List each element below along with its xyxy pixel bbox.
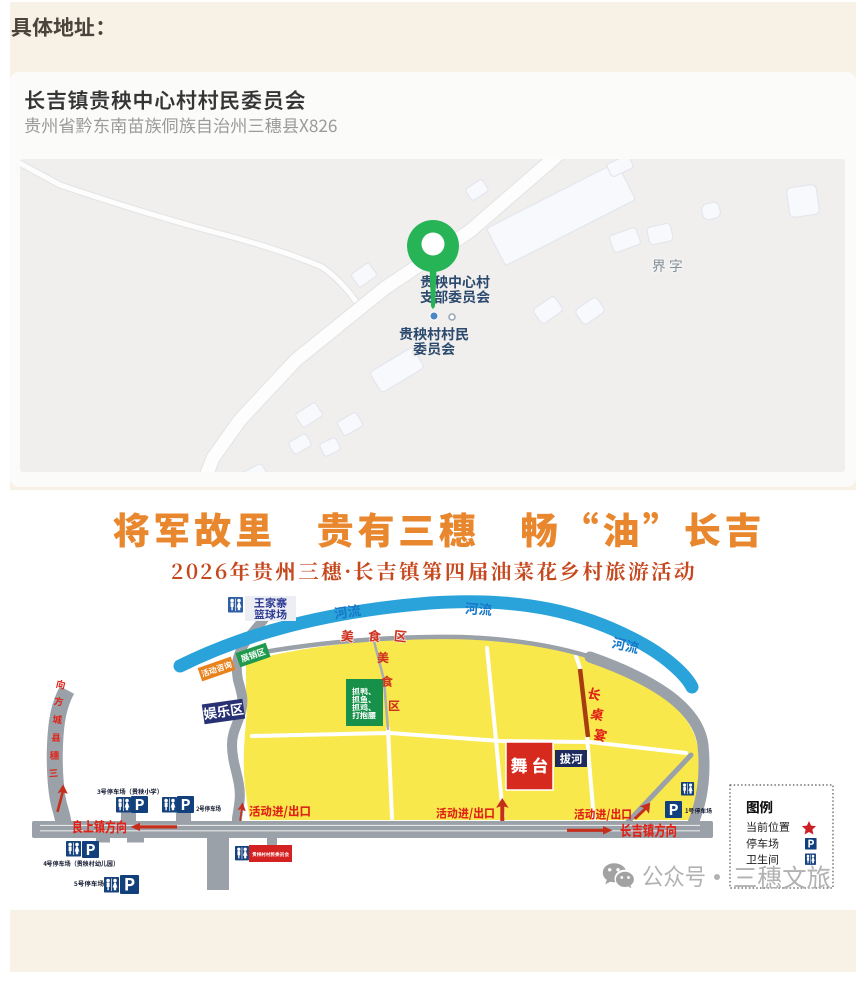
svg-text:食: 食 — [367, 625, 382, 645]
svg-text:1号停车场: 1号停车场 — [685, 806, 713, 815]
svg-text:停车场: 停车场 — [746, 836, 779, 852]
svg-text:长吉镇方向: 长吉镇方向 — [620, 820, 677, 841]
svg-text:县: 县 — [51, 730, 61, 744]
svg-text:河流: 河流 — [332, 599, 363, 623]
svg-text:公众号: 公众号 — [642, 858, 706, 892]
svg-text:良上镇方向: 良上镇方向 — [72, 817, 127, 837]
svg-text:4号停车场（贵秧村幼儿园）: 4号停车场（贵秧村幼儿园） — [43, 858, 119, 868]
svg-text:活动进/出口: 活动进/出口 — [436, 805, 495, 822]
svg-text:拔河: 拔河 — [560, 751, 583, 767]
svg-text:打抱腰: 打抱腰 — [351, 711, 376, 722]
svg-text:活动进/出口: 活动进/出口 — [249, 803, 311, 820]
svg-text:河流: 河流 — [463, 597, 493, 619]
svg-text:食: 食 — [381, 673, 394, 690]
svg-text:界字: 界字 — [652, 256, 686, 276]
svg-text:3号停车场（贵秧小学）: 3号停车场（贵秧小学） — [96, 786, 163, 796]
svg-text:舞 台: 舞 台 — [511, 752, 549, 777]
svg-text:当前位置: 当前位置 — [746, 819, 790, 835]
svg-text:美: 美 — [377, 649, 389, 666]
svg-text:三穗文旅: 三穗文旅 — [733, 858, 831, 895]
svg-text:2号停车场: 2号停车场 — [195, 803, 221, 813]
svg-text:5号停车场: 5号停车场 — [74, 878, 104, 888]
svg-text:区: 区 — [393, 625, 408, 645]
svg-text:穗: 穗 — [50, 748, 60, 762]
svg-text:美: 美 — [340, 625, 355, 645]
svg-text:篮球场: 篮球场 — [254, 607, 287, 623]
svg-text:城: 城 — [52, 712, 63, 727]
svg-text:图例: 图例 — [746, 796, 773, 816]
svg-text:委员会: 委员会 — [413, 339, 455, 359]
svg-text:贵秧村村民委员会: 贵秧村村民委员会 — [252, 851, 289, 858]
svg-text:区: 区 — [388, 697, 400, 714]
svg-text:三: 三 — [48, 765, 58, 780]
